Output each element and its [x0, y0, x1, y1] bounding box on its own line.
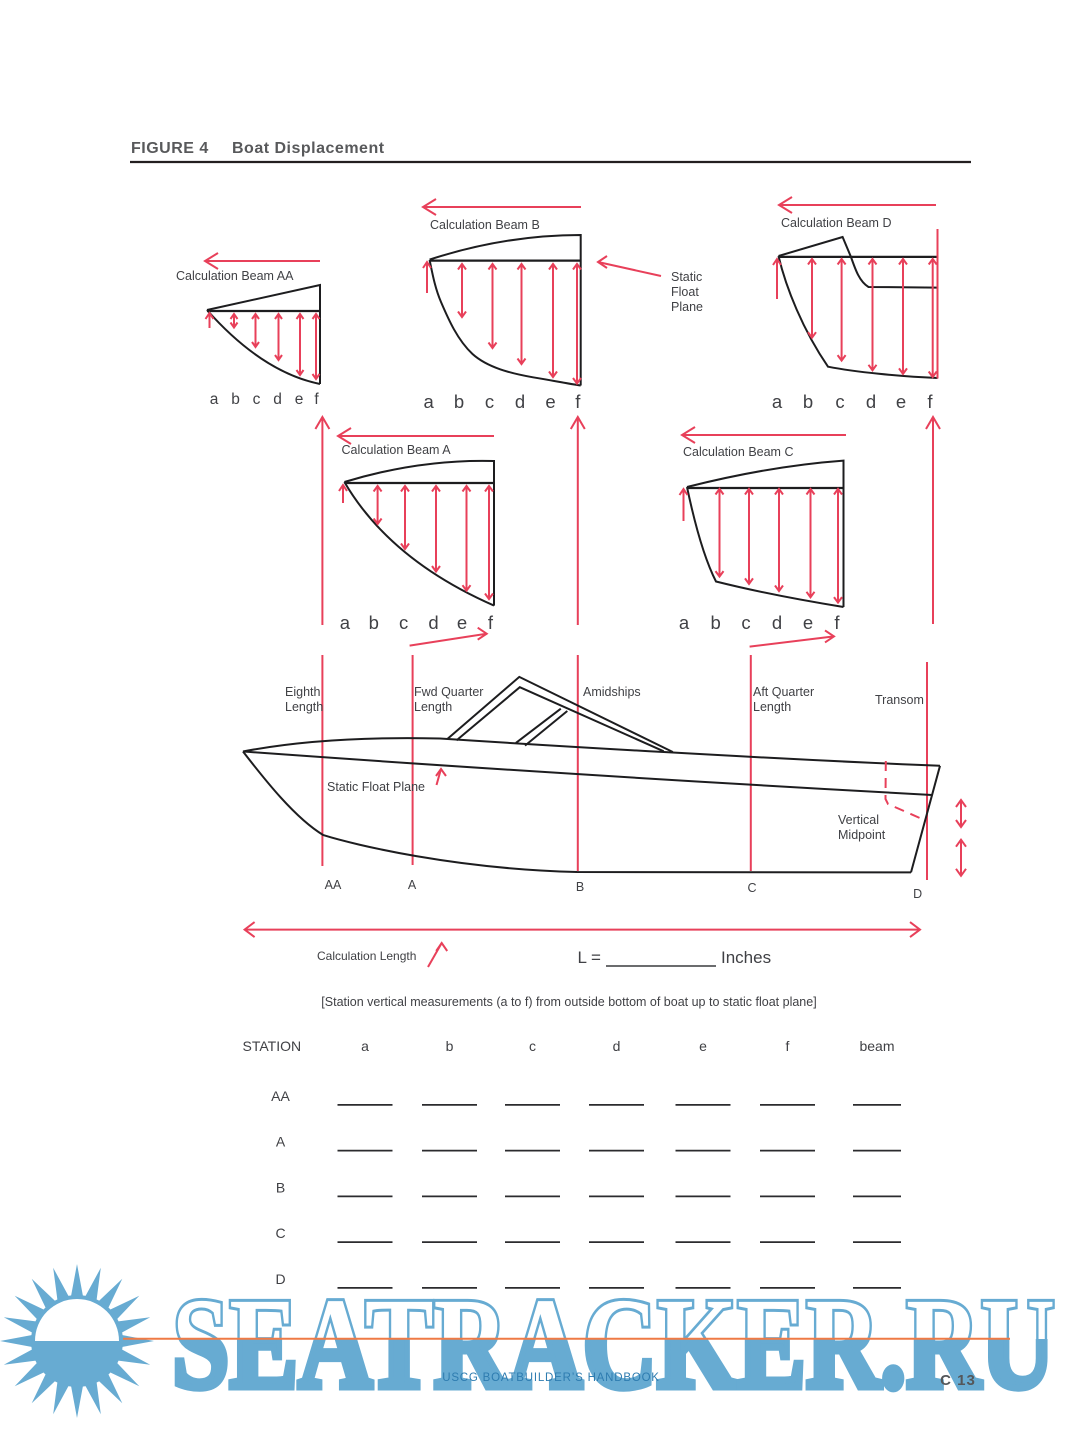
svg-text:d: d [772, 612, 782, 633]
svg-text:c: c [835, 391, 844, 412]
svg-text:Transom: Transom [875, 693, 924, 707]
svg-text:Calculation Beam D: Calculation Beam D [781, 216, 891, 230]
svg-text:Length: Length [285, 700, 323, 714]
svg-text:a: a [424, 391, 435, 412]
svg-text:Fwd Quarter: Fwd Quarter [414, 685, 483, 699]
svg-text:B: B [276, 1180, 285, 1196]
svg-text:d: d [866, 391, 876, 412]
svg-text:L =: L = [578, 948, 602, 967]
svg-text:a: a [679, 612, 690, 633]
svg-text:a: a [772, 391, 783, 412]
svg-text:d: d [613, 1038, 621, 1054]
svg-text:f: f [834, 612, 840, 633]
svg-text:Amidships: Amidships [583, 685, 641, 699]
svg-text:Calculation Length: Calculation Length [317, 949, 416, 963]
svg-text:f: f [314, 391, 319, 408]
svg-text:d: d [428, 612, 438, 633]
svg-text:Boat Displacement: Boat Displacement [232, 140, 385, 157]
svg-text:e: e [699, 1038, 707, 1054]
svg-text:e: e [457, 612, 467, 633]
svg-text:Plane: Plane [671, 300, 703, 314]
svg-text:C: C [747, 881, 756, 895]
svg-text:b: b [446, 1038, 454, 1054]
svg-text:Vertical: Vertical [838, 813, 879, 827]
svg-text:f: f [575, 391, 581, 412]
svg-text:[Station vertical measurements: [Station vertical measurements (a to f) … [321, 995, 816, 1009]
svg-text:AA: AA [325, 878, 342, 892]
svg-text:f: f [927, 391, 933, 412]
svg-text:USCG BOATBUILDER’S HANDBOOK: USCG BOATBUILDER’S HANDBOOK [442, 1372, 660, 1384]
svg-text:b: b [454, 391, 464, 412]
svg-text:e: e [295, 391, 304, 408]
svg-text:C 13: C 13 [940, 1372, 976, 1389]
svg-text:a: a [340, 612, 351, 633]
svg-text:C: C [275, 1225, 285, 1241]
svg-text:c: c [485, 391, 494, 412]
svg-text:e: e [803, 612, 813, 633]
svg-text:c: c [253, 391, 261, 408]
svg-text:Static Float Plane: Static Float Plane [327, 780, 425, 794]
svg-text:Length: Length [753, 700, 791, 714]
svg-text:f: f [786, 1038, 790, 1054]
svg-text:A: A [408, 878, 417, 892]
svg-text:D: D [913, 887, 922, 901]
svg-text:Eighth: Eighth [285, 685, 320, 699]
svg-text:Calculation Beam A: Calculation Beam A [342, 443, 452, 457]
svg-text:beam: beam [859, 1038, 894, 1054]
svg-text:Aft Quarter: Aft Quarter [753, 685, 814, 699]
svg-text:b: b [710, 612, 720, 633]
svg-text:Midpoint: Midpoint [838, 828, 886, 842]
svg-text:AA: AA [271, 1088, 290, 1104]
svg-text:b: b [803, 391, 813, 412]
svg-text:c: c [529, 1038, 536, 1054]
svg-text:e: e [545, 391, 555, 412]
svg-text:Static: Static [671, 270, 702, 284]
svg-text:Float: Float [671, 285, 699, 299]
svg-text:Calculation Beam AA: Calculation Beam AA [176, 269, 294, 283]
svg-text:d: d [515, 391, 525, 412]
svg-text:a: a [361, 1038, 369, 1054]
svg-text:e: e [896, 391, 906, 412]
svg-text:B: B [576, 880, 584, 894]
svg-text:Calculation Beam B: Calculation Beam B [430, 218, 540, 232]
svg-text:Calculation Beam C: Calculation Beam C [683, 445, 793, 459]
svg-text:a: a [210, 391, 219, 408]
svg-text:d: d [273, 391, 282, 408]
svg-text:f: f [488, 612, 494, 633]
svg-text:c: c [741, 612, 750, 633]
svg-text:b: b [231, 391, 240, 408]
svg-text:FIGURE 4: FIGURE 4 [131, 140, 209, 157]
svg-text:A: A [276, 1134, 286, 1150]
svg-text:STATION: STATION [243, 1038, 302, 1054]
svg-text:c: c [399, 612, 408, 633]
svg-text:Length: Length [414, 700, 452, 714]
svg-text:b: b [369, 612, 379, 633]
svg-text:Inches: Inches [721, 948, 771, 967]
